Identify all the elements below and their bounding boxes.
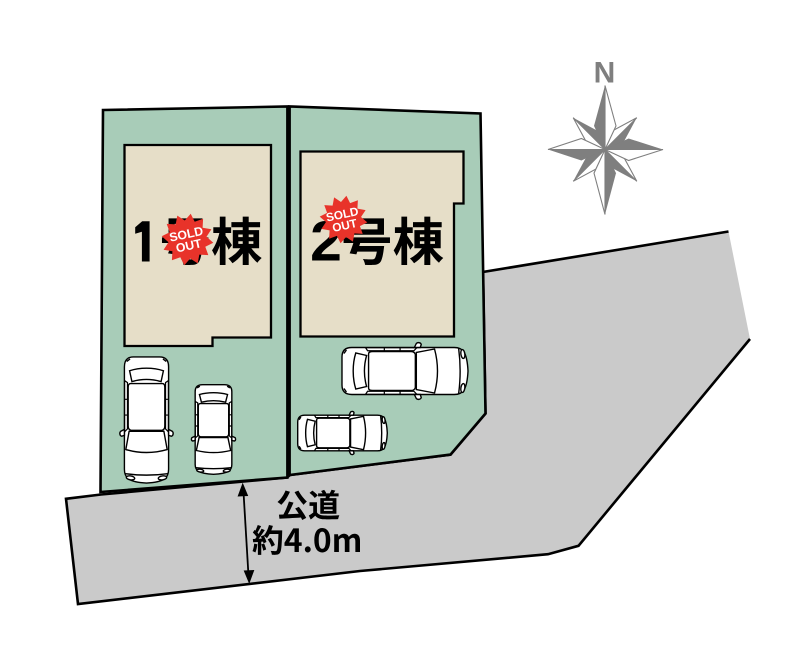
svg-text:N: N xyxy=(594,57,616,90)
